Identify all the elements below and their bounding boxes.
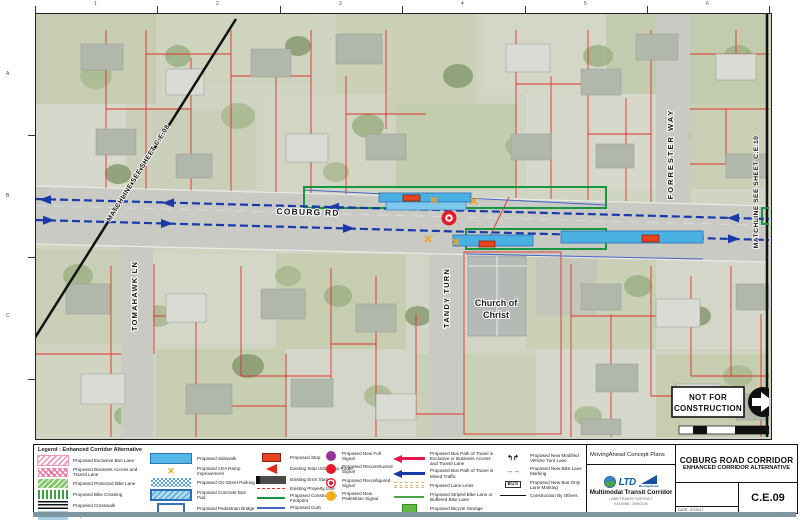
- legend-label: Proposed New Bike Lane Marking: [530, 466, 584, 476]
- concept-plans-label: MovingAhead Concept Plans: [587, 445, 675, 465]
- legend-item: BUSProposed New Bus Only Lane Marking: [500, 480, 584, 490]
- scale-bar: [679, 426, 769, 434]
- grid-col-label: 4: [461, 1, 464, 7]
- grid-tick: [525, 6, 526, 13]
- crosswalk-swatch: [38, 501, 68, 509]
- nfc-line1: NOT FOR: [689, 393, 727, 402]
- nfc-stamp: NOT FOR CONSTRUCTION: [672, 387, 744, 417]
- legend-item: →→Proposed New Bike Lane Marking: [500, 466, 584, 476]
- legend-label: Construction By Others: [530, 493, 578, 498]
- legend-label: Proposed Bike Crossing: [73, 492, 122, 497]
- emx-station-swatch: [256, 476, 286, 484]
- full-signal-icon: [326, 451, 336, 461]
- bus-only-lane-marking-icon: BUS: [505, 481, 520, 488]
- legend-label: Proposed Lane Lines: [430, 483, 473, 488]
- grid-row-label: B: [6, 193, 9, 199]
- on-street-parking-swatch: [151, 478, 191, 487]
- legend-col-5: Proposed Bus Path of Travel in Exclusive…: [392, 451, 498, 515]
- legend-item: Proposed On-Street Parking: [149, 478, 255, 487]
- reconfigured-signal-icon: [326, 478, 336, 488]
- grid-col-label: 1: [94, 1, 97, 7]
- bike-lane-marking-icon: →→: [506, 468, 520, 475]
- legend-label: Proposed ADA Ramp Improvement: [197, 466, 255, 476]
- legend-label: Proposed New Full Signal: [342, 451, 394, 461]
- legend-panel: Legend : Enhanced Corridor Alternative P…: [33, 444, 588, 514]
- org-line1: LANE TRANSIT DISTRICT: [609, 497, 652, 501]
- legend-item: Proposed Reconfigured Signal: [324, 478, 394, 488]
- legend-item: Proposed Striped Bike Lane or Buffered B…: [392, 492, 498, 502]
- ltd-logo: LTD: [619, 477, 636, 488]
- legend-item: Proposed Sidewalk: [149, 453, 255, 464]
- lane-lines-swatch: [394, 481, 424, 490]
- legend-item: ↰↱Proposed New Modified Vehicle Turn Lan…: [500, 453, 584, 463]
- legend-item: Proposed Business Access and Transit Lan…: [37, 467, 149, 477]
- grid-tick: [157, 6, 158, 13]
- legend-item: Construction By Others: [500, 493, 584, 498]
- legend-col-6: ↰↱Proposed New Modified Vehicle Turn Lan…: [500, 453, 584, 500]
- legend-label: Proposed Bus Path of Travel in Mixed Tra…: [430, 468, 498, 478]
- movingahead-swoosh-icon: [641, 475, 657, 484]
- legend-label: Proposed New Pedestrian Signal: [342, 491, 394, 501]
- legend-item: ✕Proposed ADA Ramp Improvement: [149, 466, 255, 476]
- legend-label: Proposed Reconfigured Signal: [342, 478, 394, 488]
- legend-item: Proposed Bike Crossing: [37, 490, 149, 499]
- legend-item: Proposed Bus Path of Travel in Exclusive…: [392, 451, 498, 466]
- grid-col-label: 2: [216, 1, 219, 7]
- movingahead-logo: MovingAhead: [639, 475, 659, 488]
- legend-item: Proposed Concrete Bus Pad: [149, 489, 255, 501]
- church-label-line1: Church of: [475, 298, 518, 308]
- bike-crossing-swatch: [38, 490, 68, 499]
- grid-col-label: 6: [706, 1, 709, 7]
- title-block-bottom: DATE: 07/2017 C.E.09: [676, 483, 797, 513]
- tandy-turn-label: TANDY TURN: [442, 268, 451, 328]
- forrester-way-label: FORRESTER WAY: [666, 109, 675, 200]
- proposed-stop-swatch: [262, 453, 281, 462]
- map-viewport: COBURG RD TANDY TURN TOMAHAWK LN FORREST…: [35, 13, 772, 440]
- sheet-title-line2: ENHANCED CORRIDOR ALTERNATIVE: [683, 465, 790, 471]
- grid-tick: [28, 379, 35, 380]
- legend-label: Proposed Sidewalk: [197, 456, 236, 461]
- sheet-title-line1: COBURG ROAD CORRIDOR: [680, 456, 794, 465]
- grid-col-label: 5: [584, 1, 587, 7]
- striped-bike-lane-swatch: [394, 496, 424, 498]
- bus-path-mixed-arrow-icon: [393, 470, 425, 478]
- legend-label: Proposed Bus Path of Travel in Exclusive…: [430, 451, 498, 466]
- business-access-transit-lane-swatch: [38, 468, 68, 477]
- date-cell: DATE: 07/2017: [676, 483, 739, 513]
- legend-label: Proposed Business Access and Transit Lan…: [73, 467, 149, 477]
- legend-label: Proposed Crosswalk: [73, 503, 115, 508]
- legend-item: Proposed Lane Lines: [392, 481, 498, 490]
- grid-tick: [280, 6, 281, 13]
- plan-sheet: 1 2 3 4 5 6 A B C: [0, 0, 800, 518]
- reconfigured-signal: [442, 211, 457, 226]
- grid-tick: [35, 6, 36, 13]
- construction-footprint-swatch: [257, 497, 285, 499]
- title-block-right: COBURG ROAD CORRIDOR ENHANCED CORRIDOR A…: [676, 445, 797, 513]
- legend-label: Proposed Protected Bike Lane: [73, 481, 135, 486]
- sheet-title: COBURG ROAD CORRIDOR ENHANCED CORRIDOR A…: [676, 445, 797, 483]
- sheet-number: C.E.09: [739, 483, 797, 513]
- existing-stop-icon: [266, 464, 277, 474]
- legend-label: Proposed Pedestrian Bridge: [197, 506, 254, 511]
- logo-row: LTD MovingAhead: [604, 472, 659, 488]
- legend-label: Proposed New Bus Only Lane Marking: [530, 480, 584, 490]
- ada-ramp-icon: ✕: [167, 467, 175, 476]
- concrete-bus-pad-swatch: [150, 489, 192, 501]
- multimodal-label: Multimodal Transit Corridor: [590, 489, 673, 496]
- legend-item: Proposed New Full Signal: [324, 451, 394, 461]
- grid-tick: [28, 135, 35, 136]
- legend-label: Proposed Bicycle Storage: [430, 506, 483, 511]
- proposed-stop: [403, 195, 420, 201]
- construction-by-others-swatch: [500, 495, 526, 497]
- aerial-map: COBURG RD TANDY TURN TOMAHAWK LN FORREST…: [36, 14, 769, 437]
- grid-tick: [402, 6, 403, 13]
- legend-title: Legend : Enhanced Corridor Alternative: [38, 447, 142, 453]
- grid-col-label: 3: [339, 1, 342, 7]
- legend-item: Proposed New Pedestrian Signal: [324, 491, 394, 501]
- legend-item: Proposed Crosswalk: [37, 501, 149, 509]
- grid-tick: [769, 6, 770, 13]
- sheet-bottom-bar: [33, 512, 796, 517]
- legend-label: Proposed New Modified Vehicle Turn Lane: [530, 453, 584, 463]
- reconstructed-signal-icon: [326, 464, 336, 474]
- proposed-sidewalk: [379, 193, 471, 202]
- grid-row-label: C: [6, 313, 10, 319]
- legend-item: Proposed Reconstructed Signal: [324, 464, 394, 474]
- legend-label: Proposed Striped Bike Lane or Buffered B…: [430, 492, 498, 502]
- pedestrian-signal-icon: [326, 491, 336, 501]
- legend-item: Proposed Protected Bike Lane: [37, 479, 149, 488]
- coburg-rd-label: COBURG RD: [276, 206, 339, 218]
- org-line2: EUGENE, OREGON: [614, 502, 647, 506]
- curb-swatch: [257, 507, 285, 509]
- grid-row-label: A: [6, 71, 9, 77]
- exclusive-bus-lane-swatch: [38, 456, 68, 465]
- grid-tick: [647, 6, 648, 13]
- title-block-left: MovingAhead Concept Plans LTD MovingAhea…: [587, 445, 676, 513]
- legend-label: Proposed Exclusive Bus Lane: [73, 458, 134, 463]
- nfc-line2: CONSTRUCTION: [674, 404, 742, 413]
- agency-branding: LTD MovingAhead Multimodal Transit Corri…: [587, 465, 675, 513]
- legend-col-4: Proposed New Full Signal Proposed Recons…: [324, 451, 394, 503]
- title-block: MovingAhead Concept Plans LTD MovingAhea…: [586, 444, 798, 514]
- legend-item: Proposed Bus Path of Travel in Mixed Tra…: [392, 468, 498, 478]
- church-label-line2: Christ: [483, 310, 509, 320]
- eugene-logo-icon: [604, 476, 616, 488]
- legend-label: Proposed Concrete Bus Pad: [197, 490, 255, 500]
- matchline-east-label: MATCHLINE SEE SHEET C.E.10: [753, 136, 760, 249]
- grid-tick: [28, 257, 35, 258]
- vehicle-turn-lane-icon: ↰↱: [507, 455, 519, 462]
- legend-label: Proposed Stop: [290, 455, 320, 460]
- property-line-swatch: [257, 488, 285, 489]
- proposed-stop: [642, 235, 659, 242]
- sidewalk-swatch: [150, 453, 192, 464]
- legend-label: Proposed Reconstructed Signal: [342, 464, 394, 474]
- legend-item: Proposed Exclusive Bus Lane: [37, 456, 149, 465]
- proposed-sidewalk: [561, 231, 703, 243]
- bus-path-exclusive-arrow-icon: [393, 455, 425, 463]
- legend-col-2: Proposed Sidewalk ✕Proposed ADA Ramp Imp…: [149, 453, 255, 516]
- protected-bike-lane-swatch: [38, 479, 68, 488]
- tomahawk-ln-label: TOMAHAWK LN: [130, 261, 139, 331]
- legend-label: Proposed On-Street Parking: [197, 480, 255, 485]
- proposed-stop: [479, 241, 495, 247]
- legend-item: Proposed Curb: [256, 505, 356, 510]
- legend-label: Proposed Curb: [290, 505, 321, 510]
